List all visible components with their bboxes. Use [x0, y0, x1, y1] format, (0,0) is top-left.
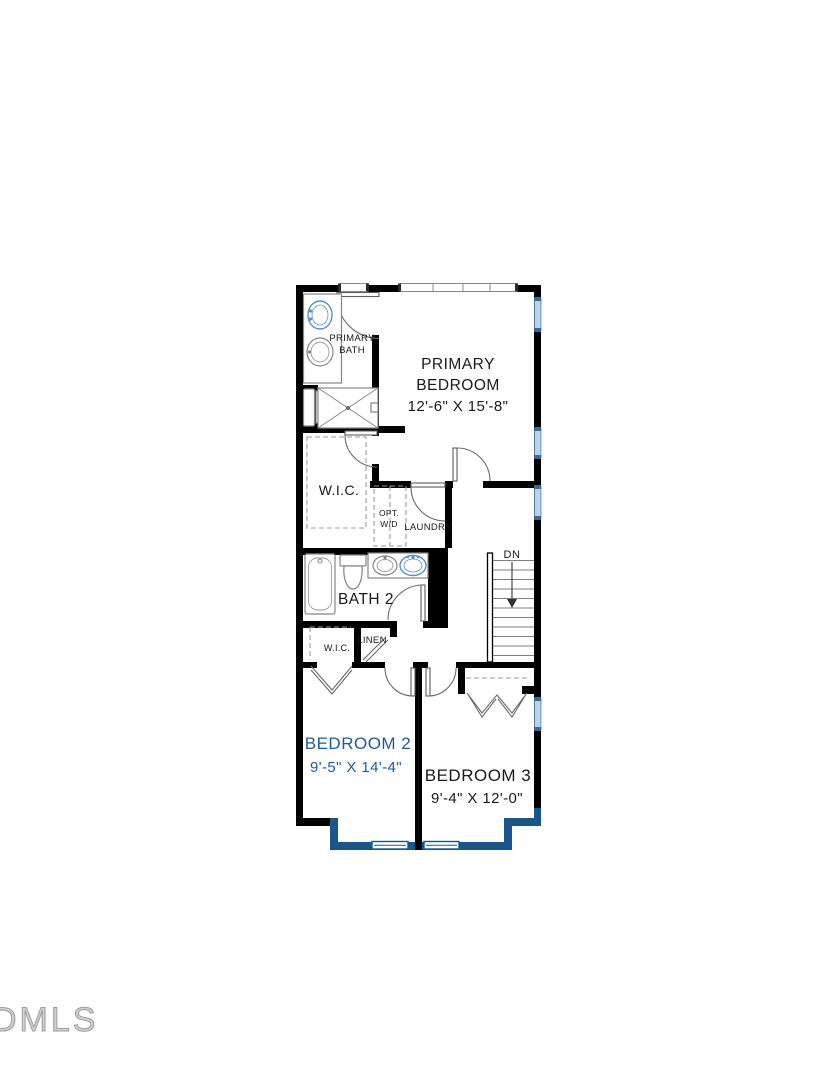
toilet-icon: [304, 389, 315, 426]
door-arc: [411, 487, 445, 521]
window: [535, 298, 542, 331]
mls-watermark-logo: DMLS: [0, 1001, 98, 1040]
primary-bath-label: BATH: [339, 345, 365, 356]
primary-wic-label: W.I.C.: [319, 482, 360, 498]
stair-rail: [488, 553, 493, 662]
primary-bedroom-label: BEDROOM: [416, 377, 500, 394]
laundry-label: LAUNDRY: [404, 522, 452, 533]
door-leaf: [426, 668, 430, 696]
bifold-door: [467, 693, 527, 717]
door-leaf: [421, 585, 425, 621]
primary-bedroom-dims: 12'-6" X 15'-8": [408, 398, 509, 415]
floor-plan-drawing: PRIMARY BATH PRIMARY BEDROOM 12'-6" X 15…: [0, 0, 825, 1068]
door-arc: [385, 668, 413, 696]
bedroom3-dims: 9'-4" X 12'-0": [431, 790, 523, 807]
linen-label: LINEN: [357, 635, 386, 646]
door-leaf: [411, 668, 415, 696]
bifold-door: [311, 666, 352, 694]
down-arrow-head: [507, 599, 517, 608]
door-leaf: [337, 293, 379, 297]
bedroom2-wic-label: W.I.C.: [324, 643, 350, 653]
stairs: [488, 553, 535, 662]
toilet-icon: [340, 555, 366, 566]
primary-bath-fixtures: [304, 294, 379, 428]
bath2-label: BATH 2: [338, 591, 394, 608]
bedroom2-label: BEDROOM 2: [305, 734, 412, 753]
opt-wd-label: W/D: [380, 519, 397, 529]
window: [535, 486, 542, 519]
bedroom2-dims: 9'-5" X 14'-4": [310, 759, 402, 776]
stairs-dn-label: DN: [504, 549, 521, 561]
window: [535, 698, 542, 730]
window: [535, 428, 542, 458]
door-leaf: [411, 483, 445, 487]
floor-plan-page: PRIMARY BATH PRIMARY BEDROOM 12'-6" X 15…: [0, 0, 825, 1068]
toilet-icon: [344, 566, 362, 589]
door-arc: [345, 435, 377, 467]
window: [340, 284, 368, 292]
shower-door: [371, 403, 378, 412]
door-arc: [457, 448, 490, 481]
primary-bedroom-label: PRIMARY: [421, 356, 495, 373]
door-arc: [428, 668, 456, 696]
opt-wd-label: OPT.: [379, 508, 399, 518]
bedroom3-label: BEDROOM 3: [425, 766, 532, 785]
stair-treads: [493, 561, 534, 656]
door-leaf: [345, 431, 377, 435]
primary-bath-label: PRIMARY: [329, 333, 375, 344]
door-leaf: [453, 448, 457, 481]
window: [400, 284, 517, 292]
